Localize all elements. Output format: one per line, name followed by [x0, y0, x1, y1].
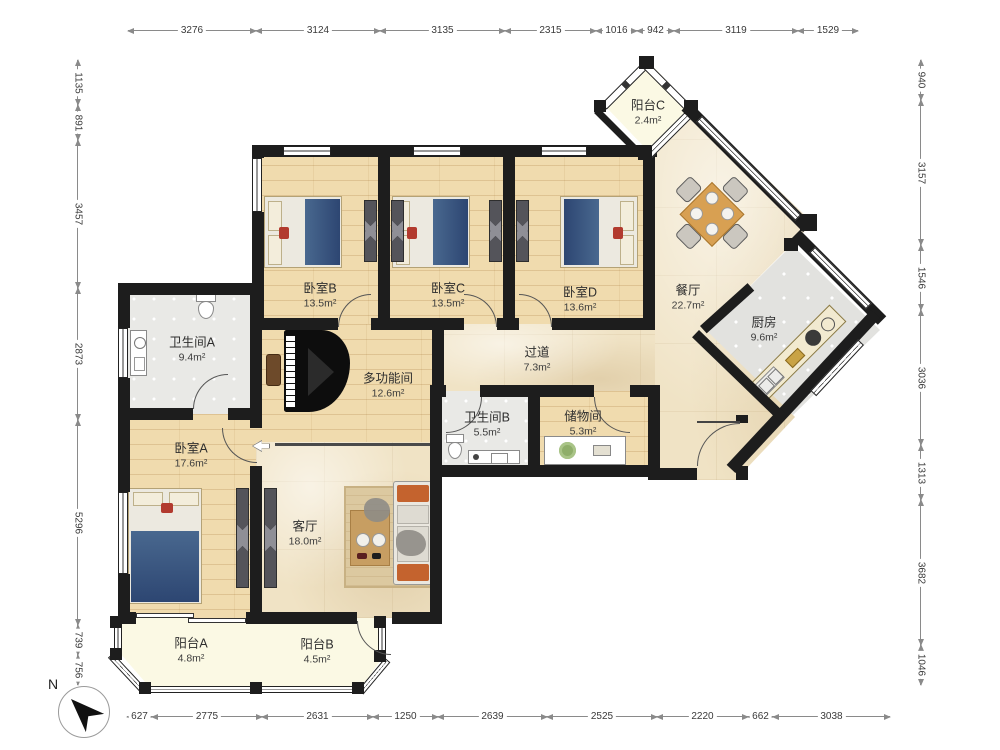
dimension-right-3: 3036 — [920, 310, 921, 445]
dimension-left-1: 891 — [77, 105, 78, 140]
dimension-top-7: 1529 — [798, 30, 858, 31]
north-label: N — [48, 676, 58, 692]
room-label-bedroom-d: 卧室D13.6m² — [563, 286, 597, 315]
dimension-bottom-4: 2639 — [438, 716, 547, 717]
dimension-bottom-8: 3038 — [773, 716, 890, 717]
room-label-balcony-a: 阳台A4.8m² — [174, 637, 207, 666]
storage-table-icon — [544, 436, 626, 465]
dimension-bottom-2: 2631 — [262, 716, 373, 717]
dimension-left-6: 756 — [77, 655, 78, 685]
dimension-bottom-5: 2525 — [547, 716, 657, 717]
dimension-left-3: 2873 — [77, 288, 78, 420]
room-label-bedroom-c: 卧室C13.5m² — [431, 282, 465, 311]
dimension-left-2: 3457 — [77, 140, 78, 288]
dimension-left-5: 739 — [77, 625, 78, 655]
wardrobe-icon — [364, 200, 377, 262]
room-label-living: 客厅18.0m² — [289, 520, 322, 549]
room-label-bathroom-b: 卫生间B5.5m² — [464, 411, 510, 440]
dimension-bottom-0: 627 — [127, 716, 152, 717]
bathroom-counter-icon — [468, 450, 520, 464]
wardrobe-icon — [236, 488, 249, 588]
dimension-top-2: 3135 — [380, 30, 505, 31]
sliding-door — [136, 613, 194, 618]
bed-bedroom-a — [128, 488, 202, 604]
dimension-left-0: 1135 — [77, 60, 78, 105]
dimension-right-0: 940 — [920, 60, 921, 100]
dimension-bottom-7: 662 — [748, 716, 773, 717]
room-label-hallway: 过道7.3m² — [524, 346, 551, 375]
bed-bedroom-d — [560, 196, 638, 268]
dimension-right-1: 3157 — [920, 100, 921, 245]
sofa — [393, 481, 433, 585]
dimension-top-4: 1016 — [596, 30, 637, 31]
dimension-bottom-1: 2775 — [152, 716, 262, 717]
wardrobe-icon — [391, 200, 404, 262]
room-label-multiroom: 多功能间12.6m² — [363, 372, 413, 401]
room-label-kitchen: 厨房9.6m² — [751, 316, 778, 345]
room-label-bedroom-b: 卧室B13.5m² — [303, 282, 336, 311]
dimension-top-0: 3276 — [128, 30, 256, 31]
entry-door-leaf — [697, 421, 740, 423]
dimension-bottom-6: 2220 — [657, 716, 748, 717]
wardrobe-icon — [264, 488, 277, 588]
room-label-bedroom-a: 卧室A17.6m² — [174, 442, 207, 471]
room-label-balcony-c: 阳台C2.4m² — [631, 99, 665, 128]
bathroom-vanity-icon — [130, 330, 147, 376]
dimension-right-6: 1046 — [920, 645, 921, 685]
floor-plan: 卧室B13.5m² 卧室C13.5m² 卧室D13.6m² 阳台C2.4m² 餐… — [0, 0, 1000, 750]
dimension-left-4: 5296 — [77, 420, 78, 625]
dimension-top-5: 942 — [637, 30, 674, 31]
room-label-storage: 储物间5.3m² — [564, 410, 602, 439]
sliding-door — [188, 618, 246, 623]
room-label-bathroom-a: 卫生间A9.4m² — [169, 336, 215, 365]
dimension-right-4: 1313 — [920, 445, 921, 500]
wardrobe-icon — [516, 200, 529, 262]
bed-bedroom-b — [264, 196, 342, 268]
wardrobe-icon — [489, 200, 502, 262]
room-label-dining: 餐厅22.7m² — [672, 284, 705, 313]
plant-decor-icon — [364, 498, 390, 522]
dimension-right-2: 1546 — [920, 245, 921, 310]
piano-stool-icon — [266, 354, 281, 386]
dimension-top-1: 3124 — [256, 30, 380, 31]
dimension-top-6: 3119 — [674, 30, 798, 31]
room-label-balcony-b: 阳台B4.5m² — [300, 638, 333, 667]
dimension-right-5: 3682 — [920, 500, 921, 645]
dimension-top-3: 2315 — [505, 30, 596, 31]
dimension-bottom-3: 1250 — [373, 716, 438, 717]
